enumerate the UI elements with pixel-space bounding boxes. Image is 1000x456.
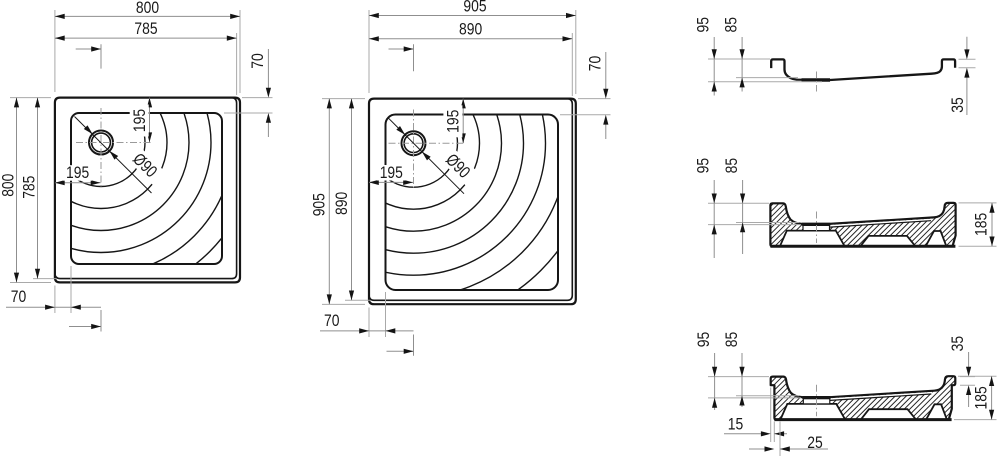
svg-text:185: 185 (971, 386, 990, 409)
svg-text:185: 185 (972, 213, 991, 236)
svg-text:25: 25 (807, 433, 823, 452)
svg-text:195: 195 (444, 110, 463, 133)
svg-text:195: 195 (66, 163, 89, 182)
svg-text:70: 70 (248, 53, 267, 69)
svg-text:70: 70 (324, 311, 340, 330)
svg-text:95: 95 (694, 17, 713, 33)
svg-text:905: 905 (463, 0, 486, 16)
svg-text:195: 195 (130, 109, 149, 132)
svg-text:890: 890 (332, 192, 351, 215)
svg-text:785: 785 (134, 19, 157, 38)
svg-text:890: 890 (459, 19, 482, 38)
svg-text:70: 70 (586, 56, 605, 72)
svg-text:800: 800 (136, 0, 159, 17)
svg-text:95: 95 (694, 332, 713, 348)
svg-text:15: 15 (728, 415, 744, 434)
svg-text:85: 85 (721, 17, 740, 33)
svg-text:800: 800 (0, 174, 17, 197)
svg-text:95: 95 (694, 158, 713, 174)
svg-text:905: 905 (310, 193, 329, 216)
svg-text:35: 35 (948, 336, 967, 352)
svg-text:85: 85 (722, 158, 741, 174)
svg-text:35: 35 (948, 97, 967, 113)
svg-text:70: 70 (11, 287, 27, 306)
svg-text:85: 85 (722, 332, 741, 348)
svg-text:195: 195 (380, 163, 403, 182)
svg-text:785: 785 (19, 176, 38, 199)
